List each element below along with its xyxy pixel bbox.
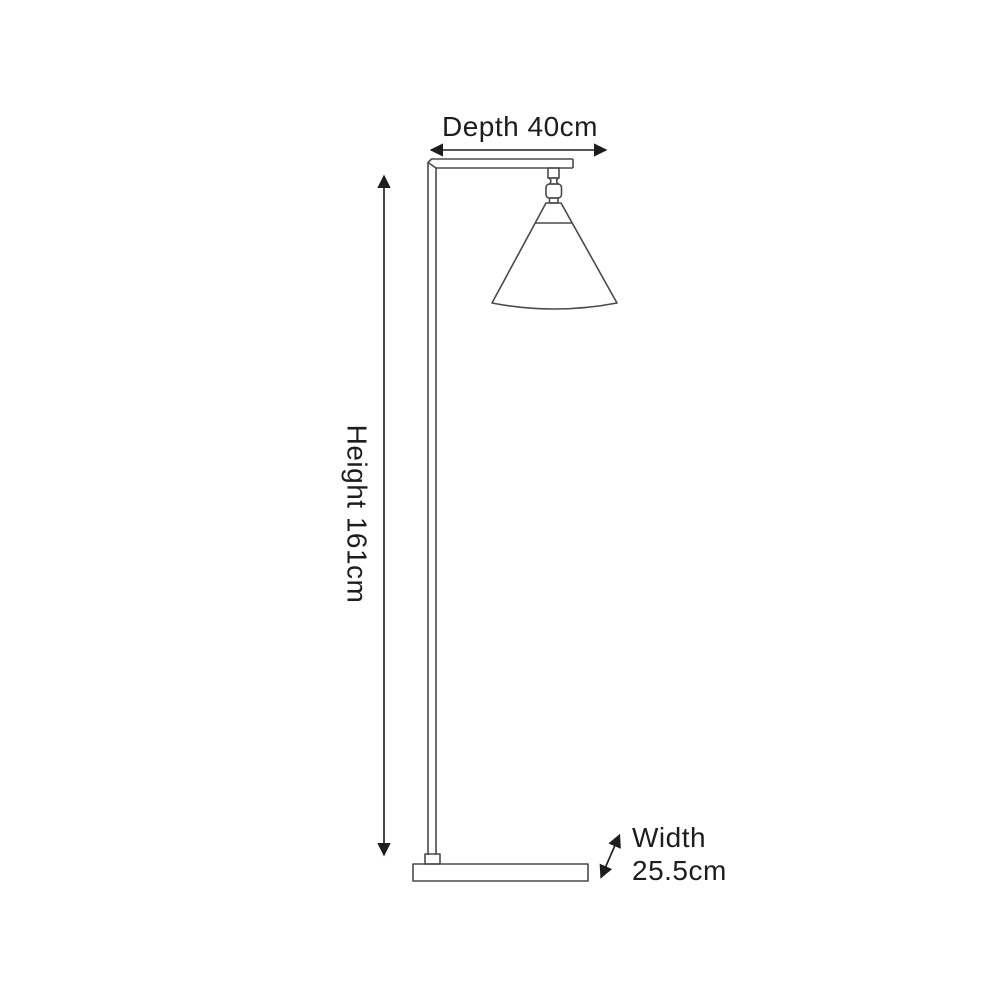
width-dimension-arrow (601, 835, 620, 878)
lamp-shade-cone (492, 203, 617, 309)
depth-dimension-label: Depth 40cm (428, 110, 612, 143)
width-dimension-value: 25.5cm (632, 854, 727, 887)
lamp-base (413, 854, 588, 881)
width-dimension-name: Width (632, 821, 727, 854)
height-dimension-label: Height 161cm (341, 425, 374, 604)
width-dimension-label: Width 25.5cm (632, 821, 727, 887)
lamp-line-drawing (0, 0, 1000, 1000)
dimension-diagram: Depth 40cm Height 161cm Width 25.5cm (0, 0, 1000, 1000)
lamp-socket-fixture (546, 168, 562, 203)
lamp-pole-and-arm (428, 159, 573, 855)
